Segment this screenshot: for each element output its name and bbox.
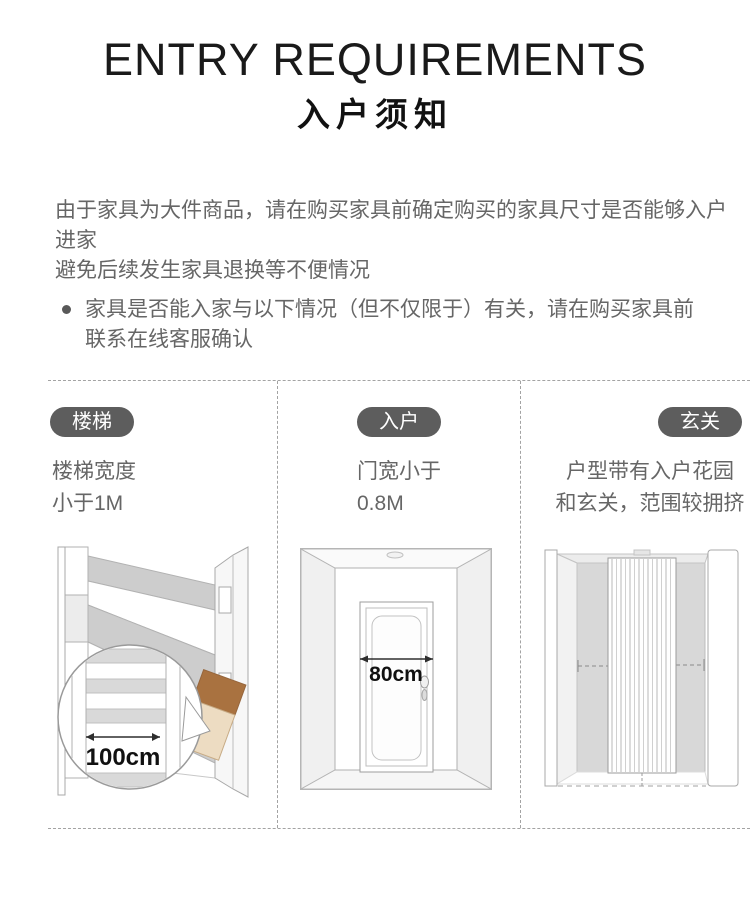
hallway-illustration: [542, 548, 742, 790]
notice-text: 家具是否能入家与以下情况（但不仅限于）有关，请在购买家具前 联系在线客服确认: [85, 295, 694, 355]
product-entry-requirements-page: ENTRY REQUIREMENTS 入户须知 由于家具为大件商品，请在购买家具…: [0, 0, 750, 923]
staircase-illustration: 100cm: [50, 545, 250, 800]
desc-stairs-line-2: 小于1M: [52, 488, 136, 520]
page-title-en: ENTRY REQUIREMENTS: [0, 34, 750, 86]
notice-bullet-item: 家具是否能入家与以下情况（但不仅限于）有关，请在购买家具前 联系在线客服确认: [55, 295, 745, 355]
ceiling-light: [387, 552, 403, 558]
column-divider-1: [277, 381, 278, 828]
column-divider-2: [520, 381, 521, 828]
desc-entry-line-2: 0.8M: [357, 488, 441, 520]
badge-stairs: 楼梯: [50, 407, 134, 437]
grid-divider-top: [48, 380, 750, 381]
grid-divider-bottom: [48, 828, 750, 829]
entry-door-illustration: 80cm: [300, 548, 492, 790]
intro-line-1: 由于家具为大件商品，请在购买家具前确定购买的家具尺寸是否能够入户进家: [55, 196, 745, 256]
intro-paragraph: 由于家具为大件商品，请在购买家具前确定购买的家具尺寸是否能够入户进家 避免后续发…: [55, 196, 745, 286]
desc-stairs: 楼梯宽度 小于1M: [52, 456, 136, 520]
desc-hallway: 户型带有入户花园 和玄关，范围较拥挤: [550, 456, 750, 520]
entry-curtain: [608, 558, 676, 773]
desc-hallway-line-1: 户型带有入户花园: [550, 456, 750, 488]
door-width-label: 80cm: [369, 663, 423, 686]
desc-entry-line-1: 门宽小于: [357, 456, 441, 488]
notice-line-2: 联系在线客服确认: [85, 325, 694, 355]
notice-line-1: 家具是否能入家与以下情况（但不仅限于）有关，请在购买家具前: [85, 295, 694, 325]
badge-entry: 入户: [357, 407, 441, 437]
desc-entry: 门宽小于 0.8M: [357, 456, 441, 520]
desc-stairs-line-1: 楼梯宽度: [52, 456, 136, 488]
intro-line-2: 避免后续发生家具退换等不便情况: [55, 256, 745, 286]
desc-hallway-line-2: 和玄关，范围较拥挤: [550, 488, 750, 520]
stairs-width-label: 100cm: [86, 744, 161, 771]
page-title-zh: 入户须知: [0, 95, 750, 135]
badge-hallway: 玄关: [658, 407, 742, 437]
bullet-marker-icon: [62, 305, 71, 314]
